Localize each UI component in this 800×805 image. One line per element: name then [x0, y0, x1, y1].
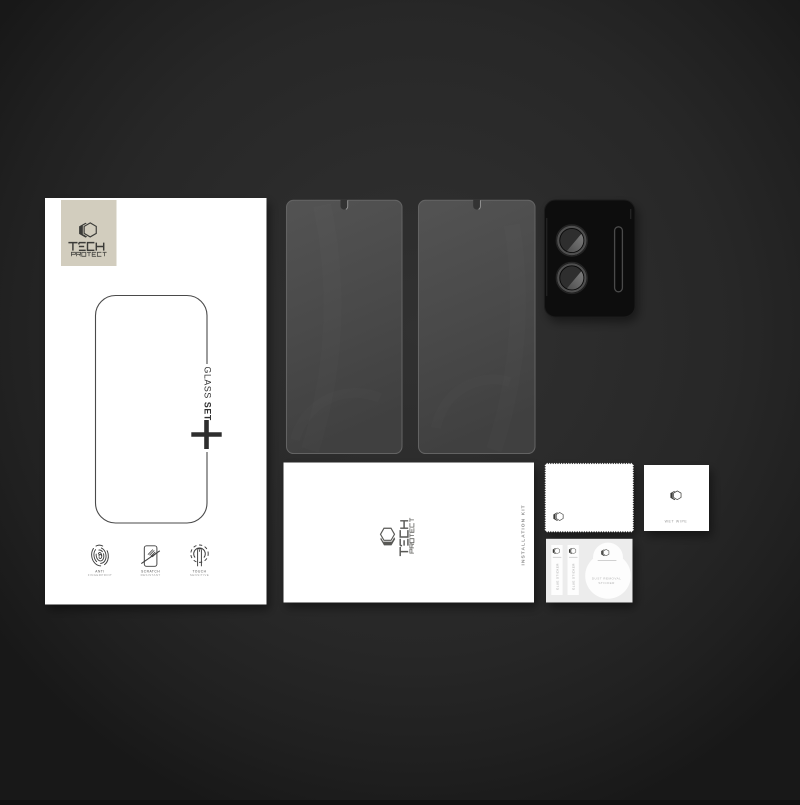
svg-text:GLUE STICKER: GLUE STICKER	[572, 563, 576, 590]
svg-text:INSTALLATION KIT: INSTALLATION KIT	[520, 504, 526, 565]
svg-text:RESISTANT: RESISTANT	[141, 573, 161, 577]
svg-text:WET WIPE: WET WIPE	[665, 519, 688, 523]
svg-text:DUST REMOVAL: DUST REMOVAL	[592, 577, 622, 581]
svg-text:SENSITIVE: SENSITIVE	[190, 573, 209, 577]
svg-text:GLUE STICKER: GLUE STICKER	[555, 563, 559, 590]
svg-text:GLASS SET: GLASS SET	[203, 367, 213, 421]
svg-text:STICKER: STICKER	[598, 581, 615, 585]
svg-text:FINGERPRINT: FINGERPRINT	[88, 573, 113, 577]
